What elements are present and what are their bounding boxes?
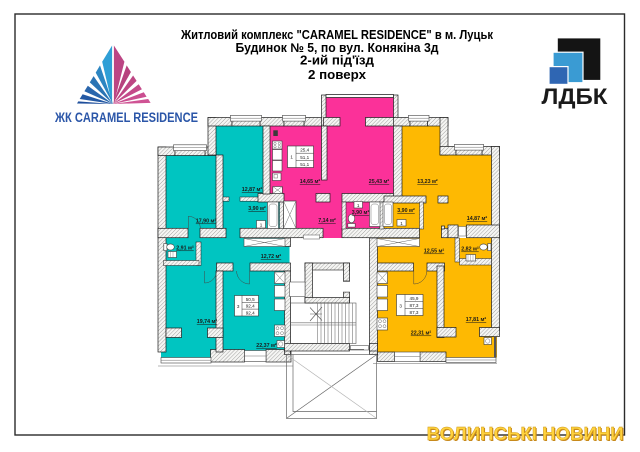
svg-text:25,43 м²: 25,43 м² [369,179,390,185]
svg-text:45,9: 45,9 [410,296,419,301]
svg-text:2 поверх: 2 поверх [308,68,366,82]
svg-text:3,90 м²: 3,90 м² [352,210,370,216]
svg-text:87,3: 87,3 [410,310,419,315]
svg-text:19,74 м²: 19,74 м² [197,319,218,325]
svg-text:2,82 м²: 2,82 м² [461,247,479,253]
svg-text:13,23 м²: 13,23 м² [417,179,438,185]
svg-text:12,87 м²: 12,87 м² [242,187,263,193]
svg-text:2-ий під'їзд: 2-ий під'їзд [300,54,374,68]
svg-text:ЖК CARAMEL RESIDENCE: ЖК CARAMEL RESIDENCE [54,110,198,125]
svg-text:7,14 м²: 7,14 м² [318,218,336,224]
svg-text:12,55 м²: 12,55 м² [424,249,445,255]
svg-text:2,91 м²: 2,91 м² [176,246,194,252]
svg-text:17,90 м²: 17,90 м² [196,219,217,225]
svg-text:22,31 м²: 22,31 м² [411,331,432,337]
svg-text:1: 1 [260,223,263,228]
svg-text:1: 1 [290,155,293,160]
svg-text:92,4: 92,4 [246,304,255,309]
svg-text:92,4: 92,4 [246,310,255,315]
svg-text:14,87 м²: 14,87 м² [467,216,488,222]
svg-text:17,81 м²: 17,81 м² [466,317,487,323]
svg-text:51,1: 51,1 [300,162,309,167]
svg-text:14,65 м²: 14,65 м² [300,179,321,185]
svg-text:3,90 м²: 3,90 м² [248,206,266,212]
svg-text:50,5: 50,5 [246,297,255,302]
svg-text:12,72 м²: 12,72 м² [261,254,282,260]
svg-text:ЛДБК: ЛДБК [542,84,608,109]
svg-text:3,90 м²: 3,90 м² [397,208,415,214]
svg-text:3: 3 [237,304,240,309]
svg-text:Житловий комплекс "CARAMEL RES: Житловий комплекс "CARAMEL RESIDENCE" в … [180,28,494,42]
svg-text:22,37 м²: 22,37 м² [256,343,277,349]
svg-text:1: 1 [357,203,360,208]
svg-text:1: 1 [400,221,403,226]
svg-text:51,1: 51,1 [300,155,309,160]
svg-text:3: 3 [399,303,402,308]
svg-text:87,3: 87,3 [410,303,419,308]
svg-text:25,4: 25,4 [300,148,309,153]
svg-text:ВОЛИНСЬКІ НОВИНИ: ВОЛИНСЬКІ НОВИНИ [427,424,624,444]
